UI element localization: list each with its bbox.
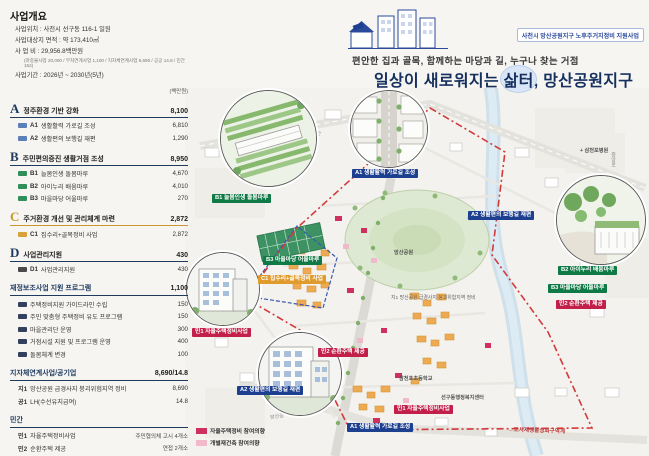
- buildings-illustration-icon: [348, 6, 448, 52]
- map-label-b3-right: B3 마을마당 어울마루: [548, 284, 607, 293]
- map-label-b2: B2 아이누리 배움마루: [558, 266, 617, 275]
- title-highlight: 삶터: [504, 67, 534, 91]
- project-summary-panel: 사업개요 사업위치사천시 선구동 116-1 일원 사업대상지 면적약 173,…: [10, 8, 188, 453]
- budget-item-b2: B2 아이누리 배움마루 4,010: [18, 182, 188, 191]
- section-title: 주거환경 개선 및 관리체계 마련: [23, 214, 170, 224]
- overview-row-cost: 사 업 비29,956.8백만원: [15, 48, 188, 56]
- section-code: B: [10, 150, 19, 163]
- budget-section-a: A 정주환경 기반 강화 8,100 A1 생활활력 가로길 조성 6,810 …: [10, 102, 188, 143]
- budget-section-private: 민간 민1 자율주택정비사업 주민협의체 고시 4개소 민2 순환주택 제공 연…: [10, 415, 188, 453]
- map-label-min1: 민1 자율주택정비사업: [192, 328, 251, 337]
- section-total: 8,100: [170, 108, 188, 115]
- budget-item-a2: A2 생활편의 보행길 재편 1,290: [18, 134, 188, 143]
- tag-chip-icon: [18, 267, 27, 272]
- overview-cost-note: (마중물사업 20,000 / 부처연계사업 1,100 / 지자체연계사업 8…: [24, 58, 188, 69]
- linked-item-gong1: 공1 LH(수선유지급여) 14.8: [18, 397, 188, 406]
- panel-title: 사업개요: [10, 8, 188, 23]
- section-total: 8,950: [170, 156, 188, 163]
- budget-item-b1: B1 늘봄인생 돌봄마루 4,670: [18, 169, 188, 178]
- section-total: 2,872: [170, 216, 188, 223]
- tag-chip-icon: [18, 314, 27, 319]
- map-label-min2-right: 민2 순환주택 제공: [556, 300, 606, 309]
- map-label-ji1: 지1 망산공원 급경사지 붕괴위험지역 정비: [391, 297, 476, 302]
- section-code: A: [10, 102, 19, 115]
- tag-chip-icon: [18, 123, 27, 128]
- map-label-min2: 민2 순환주택 제공: [318, 348, 368, 357]
- legend-swatch-dark-pink-icon: [196, 428, 207, 434]
- callout-b1-render: [220, 90, 317, 187]
- overview-row-period: 사업기간2026년 ~ 2030년(5년): [15, 72, 188, 80]
- tag-chip-icon: [18, 339, 27, 344]
- program-item: 돌봄체계 변경 100: [18, 350, 188, 359]
- map-label-b1: B1 늘봄인생 돌봄마루: [212, 194, 271, 203]
- tag-chip-icon: [18, 327, 27, 332]
- overview-row-area: 사업대상지 면적약 173,410㎡: [15, 37, 188, 45]
- program-item: 마을관리단 운영 300: [18, 325, 188, 334]
- map-label-a2-bottom: A2 생활편의 보행길 재편: [237, 386, 303, 395]
- budget-item-c1: C1 집수리+골목정비 사업 2,872: [18, 230, 188, 239]
- section-title: 재정보조사업 지원 프로그램: [10, 283, 170, 293]
- section-title: 정주환경 기반 강화: [23, 106, 170, 116]
- private-item-min1: 민1 자율주택정비사업 주민협의체 고시 4개소: [18, 431, 188, 440]
- section-total: 1,100: [170, 285, 188, 292]
- map-label-a2: A2 생활편의 보행길 재편: [468, 211, 534, 220]
- map-label-a1-bottom: A1 생활활력 가로길 조성: [347, 423, 413, 432]
- section-code: D: [10, 246, 19, 259]
- section-title: 민간: [10, 415, 188, 425]
- tag-chip-icon: [18, 136, 27, 141]
- map-label-c1: C1 집수리+골목정비 사업: [258, 275, 326, 284]
- budget-section-c: C 주거환경 개선 및 관리체계 마련 2,872 C1 집수리+골목정비 사업…: [10, 210, 188, 239]
- budget-unit: (백만원): [10, 87, 188, 95]
- section-total: 430: [176, 252, 188, 259]
- tag-chip-icon: [18, 171, 27, 176]
- program-item: 주민 맞춤형 주택정비 유도 프로그램 150: [18, 312, 188, 321]
- program-item: 주택정비지원 가이드라인 수립 150: [18, 300, 188, 309]
- map-label-a1-callout: A1 생활활력 가로길 조성: [352, 169, 418, 178]
- tag-chip-icon: [18, 196, 27, 201]
- overview-row-location: 사업위치사천시 선구동 116-1 일원: [15, 26, 188, 34]
- road-label-jungang-ro: 중앙로: [610, 152, 617, 167]
- linked-item-ji1: 지1 망산공원 급경사지 붕괴위험지역 정비 8,690: [18, 384, 188, 393]
- section-title: 지자체연계사업/공기업: [10, 368, 155, 378]
- legend-swatch-light-pink-icon: [196, 440, 207, 446]
- budget-item-b3: B3 마을마당 어울마루 270: [18, 194, 188, 203]
- tag-chip-icon: [18, 302, 27, 307]
- poster-title: 일상이 새로워지는 삶터, 망산공원지구: [374, 67, 633, 91]
- legend-item-jayul: 자율주택정비 참여의향: [196, 426, 265, 435]
- map-legend: 자율주택정비 참여의향 개별재건축 참여의향: [196, 423, 265, 447]
- callout-a1-render: [350, 90, 428, 168]
- map-label-b3: B3 마을마당 어울마루: [263, 256, 322, 265]
- callout-b2-render: [556, 175, 646, 265]
- landmark-elementary-school: 삼천포초등학교: [399, 375, 432, 382]
- project-badge: 사천시 망산공원지구 노후주거지정비 지원사업: [517, 28, 644, 42]
- section-title: 사업관리지원: [23, 250, 176, 260]
- budget-item-d1: D1 사업관리지원 430: [18, 265, 188, 274]
- section-code: C: [10, 210, 19, 223]
- budget-section-linked: 지자체연계사업/공기업 8,690/14.8 지1 망산공원 급경사지 붕괴위험…: [10, 368, 188, 406]
- poster-page: 사업개요 사업위치사천시 선구동 116-1 일원 사업대상지 면적약 173,…: [0, 0, 649, 456]
- tag-chip-icon: [18, 232, 27, 237]
- program-item: 거점시설 지원 및 프로그램 운영 400: [18, 337, 188, 346]
- callout-min2-render: [258, 332, 342, 416]
- legend-item-gaebyeol: 개별재건축 참여의향: [196, 438, 265, 447]
- budget-section-program: 재정보조사업 지원 프로그램 1,100 주택정비지원 가이드라인 수립 150…: [10, 283, 188, 359]
- budget-item-a1: A1 생활활력 가로길 조성 6,810: [18, 121, 188, 130]
- budget-section-d: D 사업관리지원 430 D1 사업관리지원 430: [10, 246, 188, 275]
- landmark-hospital: + 삼천포병원: [580, 147, 608, 154]
- private-item-min2: 민2 순환주택 제공 연접 2개소: [18, 444, 188, 453]
- section-title: 주민편의증진 생활거점 조성: [23, 154, 171, 164]
- section-total: 8,690/14.8: [155, 370, 188, 377]
- poster-subtitle: 편안한 집과 골목, 함께하는 마당과 길, 누구나 찾는 거점: [352, 53, 579, 67]
- tag-chip-icon: [18, 352, 27, 357]
- tag-chip-icon: [18, 184, 27, 189]
- poster-header: 사천시 망산공원지구 노후주거지정비 지원사업 편안한 집과 골목, 함께하는 …: [330, 4, 646, 96]
- landmark-community-center: 선구동행정복지센터: [441, 394, 484, 401]
- budget-section-b: B 주민편의증진 생활거점 조성 8,950 B1 늘봄인생 돌봄마루 4,67…: [10, 150, 188, 204]
- callout-min1-render: [186, 252, 260, 326]
- map-label-min1-bottom: 민1 자율주택정비사업: [394, 405, 453, 414]
- landmark-mangsan-park: 망산공원: [394, 249, 413, 256]
